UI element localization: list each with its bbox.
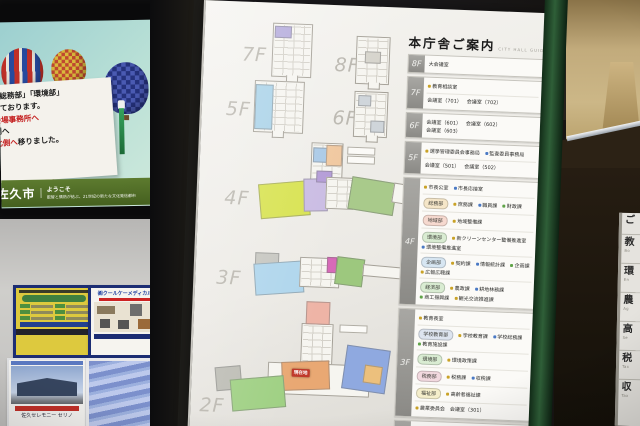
side-sign-kanji: 環 <box>624 266 640 277</box>
item-bullet <box>454 296 457 299</box>
banner-text: ようこそ 叡智と情熱が結ぶ、21世紀の新たな文化発信都市 <box>47 185 136 199</box>
item-bullet <box>447 375 450 378</box>
side-sign-kanji: 教 <box>624 237 640 248</box>
directory-item: 広報広聴課 <box>421 268 451 276</box>
directory-floor-5f: 5F選挙管理委員会事務局監査委員事務局会議室（501）会議室（502） <box>403 141 540 179</box>
side-sign-row: 収Tax <box>618 379 640 409</box>
plan-room <box>254 84 274 130</box>
directory-item-label: 会議室（702） <box>467 98 502 106</box>
department-pill: 税務部 <box>417 370 442 382</box>
notice-text: 北側へ <box>0 138 18 149</box>
directory-item: 会議室（602） <box>466 120 501 128</box>
plan-2f-left-wing <box>230 375 286 411</box>
decor <box>66 311 88 314</box>
directory-item-label: 農業委員会 <box>420 405 445 413</box>
plan-callout <box>347 147 375 156</box>
directory-item: 教育施設課 <box>418 340 448 348</box>
side-sign-rows: ご教Bo環En農Ag高Se税Tax収Tax <box>618 213 640 409</box>
balloon-basket <box>124 115 129 120</box>
ceremony-hall-poster: 佐久セレモニー セリノ <box>7 358 87 426</box>
directory-item-label: 会議室（501） <box>425 162 460 170</box>
directory-panel: 本庁舎ご案内CITY HALL GUIDE 8F大会議室7F教育相談室会議室（7… <box>391 32 545 426</box>
floor-content: 大会議室 <box>424 56 543 78</box>
floor-badge-5f: 5F <box>405 142 422 174</box>
decor <box>97 306 115 314</box>
directory-item-label: 商工振興課 <box>424 293 449 301</box>
directory-item-label: 収税課 <box>476 374 491 382</box>
decor <box>100 319 110 328</box>
floor-content: 市長公室市長応接室総務部庶務課職員課財政課地域部地域整備課環境部新クリーンセンタ… <box>415 178 538 308</box>
item-bullet <box>428 85 431 88</box>
decor <box>130 304 142 316</box>
plan-3f-right-wing <box>334 256 365 287</box>
department-pill: 経済部 <box>420 281 445 293</box>
directory-item: 契約課 <box>451 259 471 267</box>
side-sign-english: Ag <box>623 306 640 311</box>
directory-item-label: 会議室（502） <box>464 163 499 171</box>
directory-item-label: 職員課 <box>482 201 497 209</box>
side-sign-row: 高Se <box>619 321 640 351</box>
item-bullet <box>452 236 455 239</box>
decor <box>20 316 30 320</box>
directory-floor-3f: 3F教育長室学校教育部学校教育課学校総務課教育施設課環境部環境政策課税務部税務課… <box>394 308 534 422</box>
directory-item: 会議室（701） <box>427 97 462 105</box>
medical-equipment-photo <box>94 302 156 332</box>
directory-item-label: 選挙管理委員会事務局 <box>430 148 480 157</box>
directory-item-label: 教育相談室 <box>432 83 457 91</box>
directory-item: 選挙管理委員会事務局 <box>425 148 480 157</box>
decor <box>20 304 30 308</box>
building <box>17 378 77 396</box>
side-sign-kanji: 農 <box>623 295 640 306</box>
decor <box>118 320 129 329</box>
department-pill: 環境部 <box>417 353 442 365</box>
directory-item: 地域整備課 <box>453 217 483 225</box>
directory-item-label: 新クリーンセンター整備推進室 <box>456 234 526 244</box>
side-sign-english: Tax <box>621 393 640 398</box>
guide-board: 7F 8F 5F 6F 4F 3F 2F <box>188 0 550 426</box>
directory-item-label: 税務課 <box>451 373 466 381</box>
department-pill: 学校教育部 <box>418 328 453 340</box>
directory-item-label: 観光交流推進課 <box>459 295 494 303</box>
side-sign-english: Tax <box>622 364 640 369</box>
directory-item: 大会議室 <box>429 61 449 69</box>
directory-item: 市長応接室 <box>453 185 483 193</box>
directory-item-label: 大会議室 <box>429 61 449 69</box>
directory-floor-6f: 6F会議室（601）会議室（602）会議室（603） <box>405 112 542 143</box>
directory-item-label: 農政課 <box>455 284 470 292</box>
plan-label-5f: 5F <box>225 98 251 121</box>
plan-label-7f: 7F <box>242 44 268 67</box>
floor-plan-6f <box>353 91 389 138</box>
ad-contact-bar <box>94 334 156 339</box>
floor-badge-6f: 6F <box>406 113 423 138</box>
directory-line: 農業委員会会議室（301） <box>414 400 526 418</box>
blue-water-poster <box>86 358 160 426</box>
decor <box>138 319 150 329</box>
timetable-ad-poster <box>13 285 95 358</box>
board-title: 本庁舎ご案内CITY HALL GUIDE <box>408 32 545 56</box>
item-bullet <box>419 316 422 319</box>
item-bullet <box>424 186 427 189</box>
directory-item: 高齢者福祉課 <box>446 390 481 398</box>
decor <box>20 316 53 320</box>
item-bullet <box>485 152 488 155</box>
tv-banner: 佐久市 | ようこそ 叡智と情熱が結ぶ、21世紀の新たな文化発信都市 <box>1 178 154 208</box>
decor <box>66 305 88 308</box>
side-sign-row: 教Bo <box>621 234 640 264</box>
ad-phone-bar <box>16 329 92 335</box>
item-bullet <box>475 287 478 290</box>
directory-item: 企画課 <box>510 261 530 269</box>
item-bullet <box>453 187 456 190</box>
directory-item: 新クリーンセンター整備推進室 <box>452 234 526 244</box>
side-sign-english: Se <box>623 335 640 340</box>
directory-item: 会議室（603） <box>426 126 461 134</box>
directory-item-label: 財政課 <box>507 202 522 210</box>
floor-plan-8f <box>355 36 391 85</box>
directory-item-label: 教育長室 <box>423 315 443 323</box>
department-pill: 環境部 <box>422 231 447 243</box>
directory-item: 耕地林務課 <box>475 285 505 293</box>
directory-item: 商工振興課 <box>420 293 450 301</box>
directory-item-label: 市長公室 <box>428 184 448 192</box>
item-bullet <box>425 150 428 153</box>
item-bullet <box>453 202 456 205</box>
ad-subtitle-bar <box>99 298 151 301</box>
floor-badge-2f: 2F <box>392 421 411 426</box>
directory-item: 会議室（301） <box>450 406 485 414</box>
plan-room <box>326 145 343 167</box>
directory-item: 会議室（702） <box>467 98 502 106</box>
plan-callout <box>347 156 375 165</box>
directory-item-label: 監査委員事務局 <box>489 150 524 158</box>
directory-floors: 8F大会議室7F教育相談室会議室（701）会議室（702）6F会議室（601）会… <box>391 54 544 426</box>
directory-item: 会議室（601） <box>426 118 461 126</box>
ceremony-hall-caption: 佐久セレモニー セリノ <box>9 412 85 419</box>
side-sign-kanji: 税 <box>622 353 640 364</box>
item-bullet <box>415 406 418 409</box>
plan-4f-right-wing <box>347 176 398 216</box>
directory-item-label: 環境整備推進室 <box>426 243 461 251</box>
decor <box>66 317 88 320</box>
plan-room <box>363 365 383 385</box>
city-name: 佐久市 <box>0 185 36 203</box>
decor <box>55 316 65 320</box>
directory-item: 教育相談室 <box>428 83 458 91</box>
directory-item: 庶務課 <box>453 200 473 208</box>
directory-item: 市長公室 <box>424 184 449 192</box>
floor-plan-5f <box>253 80 305 134</box>
directory-item-label: 学校教育課 <box>463 332 488 340</box>
directory-item: 学校教育課 <box>458 332 488 340</box>
directory-item-label: 企画課 <box>514 262 529 270</box>
directory-item: 学校総務課 <box>493 333 523 341</box>
item-bullet <box>447 358 450 361</box>
directory-line: 会議室（601）会議室（602）会議室（603） <box>425 116 538 140</box>
medical-ad-title: ㈱クールケーメディカル <box>91 290 159 297</box>
directory-floor-4f: 4F市長公室市長応接室総務部庶務課職員課財政課地域部地域整備課環境部新クリーンセ… <box>398 177 539 310</box>
directory-item: 監査委員事務局 <box>485 150 525 159</box>
ad-url-bar <box>20 322 88 327</box>
plan-3f-left-wing <box>253 260 304 295</box>
department-pill: 地域部 <box>423 214 448 226</box>
board-title-text: 本庁舎ご案内 <box>408 35 496 53</box>
ad-table <box>20 304 88 320</box>
plan-callout <box>339 324 367 333</box>
tv-screen: 「総務部」「環境部」しております。会場事務所へ側へ北側へ移りました。 佐久市 |… <box>0 20 155 209</box>
directory-item: 会議室（502） <box>464 163 499 171</box>
directory-item: 収税課 <box>471 374 491 382</box>
item-bullet <box>471 376 474 379</box>
floor-badge-8f: 8F <box>408 55 425 73</box>
decor <box>20 310 30 314</box>
directory-item: 財政課 <box>502 202 522 210</box>
side-sign-row: 税Tax <box>619 350 640 380</box>
side-sign-english: En <box>624 277 640 282</box>
building-photo <box>11 366 83 404</box>
department-pill: 福祉部 <box>416 387 441 399</box>
decor <box>55 304 88 308</box>
plan-label-3f: 3F <box>216 267 242 290</box>
department-pill: 総務部 <box>423 197 448 209</box>
tv-monitor: 「総務部」「環境部」しております。会場事務所へ側へ北側へ移りました。 佐久市 |… <box>0 0 174 219</box>
directory-item-label: 会議室（601） <box>426 118 461 126</box>
directory-item: 教育長室 <box>419 314 444 322</box>
decor <box>55 316 88 320</box>
floor-content: 選挙管理委員会事務局監査委員事務局会議室（501）会議室（502） <box>421 142 540 178</box>
directory-item: 税務課 <box>447 373 467 381</box>
directory-item-label: 庶務課 <box>458 200 473 208</box>
directory-item-label: 会議室（603） <box>426 126 461 134</box>
photo-scene: 「総務部」「環境部」しております。会場事務所へ側へ北側へ移りました。 佐久市 |… <box>0 0 640 426</box>
department-pill: 企画部 <box>421 256 446 268</box>
plan-room <box>370 120 384 133</box>
item-bullet <box>422 245 425 248</box>
directory-line: 会議室（701）会議室（702） <box>426 93 538 111</box>
side-sign-row: 環En <box>621 263 640 293</box>
item-bullet <box>421 270 424 273</box>
green-pole <box>119 108 125 154</box>
item-bullet <box>478 203 481 206</box>
plan-label-4f: 4F <box>224 187 250 210</box>
plan-room <box>358 95 371 106</box>
floor-content: 会議室（601）会議室（602）会議室（603） <box>422 113 541 142</box>
directory-item: 情報統計課 <box>475 260 505 268</box>
directory-item-label: 地域整備課 <box>457 217 482 225</box>
board-subtitle: CITY HALL GUIDE <box>498 46 548 53</box>
decor <box>368 82 380 89</box>
side-sign-kanji: ご <box>625 215 640 226</box>
directory-item: 職員課 <box>478 201 498 209</box>
item-bullet <box>420 295 423 298</box>
item-bullet <box>450 286 453 289</box>
notice-text: 移りました。 <box>17 135 63 147</box>
item-bullet <box>510 263 513 266</box>
decor <box>31 317 53 320</box>
directory-item-label: 契約課 <box>455 259 470 267</box>
decor <box>20 304 53 308</box>
item-bullet <box>446 392 449 395</box>
floor-plan-7f <box>271 23 313 78</box>
side-directory-sign: ご教Bo環En農Ag高Se税Tax収Tax <box>615 213 640 426</box>
decor <box>55 310 88 314</box>
floor-badge-7f: 7F <box>407 77 424 109</box>
directory-item: 農政課 <box>450 284 470 292</box>
directory-floor-8f: 8F大会議室 <box>407 54 544 78</box>
plan-room <box>275 26 292 39</box>
item-bullet <box>502 204 505 207</box>
directory-item-label: 環境政策課 <box>452 356 477 364</box>
side-sign-kanji: 高 <box>623 324 640 335</box>
decor <box>31 305 53 308</box>
item-bullet <box>458 334 461 337</box>
ad-green-banner <box>22 295 86 302</box>
notice-text: 会場事務所へ <box>0 113 39 125</box>
plan-room <box>306 301 331 325</box>
side-sign-english: Bo <box>624 248 640 253</box>
notice-text: 側へ <box>0 127 10 137</box>
decor <box>55 310 65 314</box>
you-are-here-badge: 現在地 <box>292 369 310 378</box>
side-sign-row: 農Ag <box>620 292 640 322</box>
poster-header-bar <box>11 361 83 365</box>
floor-content: 教育相談室会議室（701）会議室（702） <box>423 78 542 114</box>
banner-divider: | <box>39 188 43 199</box>
poster-red-banner <box>15 406 79 411</box>
directory-item-label: 会議室（602） <box>466 120 501 128</box>
decor <box>55 304 65 308</box>
directory-item: 観光交流推進課 <box>454 294 494 303</box>
tv-notice-panel: 「総務部」「環境部」しております。会場事務所へ側へ北側へ移りました。 <box>0 77 118 184</box>
directory-item-label: 会議室（301） <box>450 406 485 414</box>
directory-line: 経済部農政課耕地林務課商工振興課観光交流推進課 <box>419 277 532 306</box>
item-bullet <box>453 219 456 222</box>
city-slogan: 叡智と情熱が結ぶ、21世紀の新たな文化発信都市 <box>47 193 136 200</box>
item-bullet <box>451 261 454 264</box>
ad-headline-bar <box>19 290 89 293</box>
side-sign-row: ご <box>622 213 640 235</box>
side-sign-kanji: 収 <box>621 382 640 393</box>
directory-item-label: 情報統計課 <box>480 260 505 268</box>
decor <box>31 311 53 314</box>
directory-item: 会議室（501） <box>425 162 460 170</box>
directory-floor-7f: 7F教育相談室会議室（701）会議室（702） <box>406 76 543 114</box>
floor-plans: 7F 8F 5F 6F 4F 3F 2F <box>190 0 411 426</box>
item-bullet <box>476 262 479 265</box>
directory-item: 農業委員会 <box>415 404 445 412</box>
item-bullet <box>418 342 421 345</box>
decor <box>20 310 53 314</box>
directory-item-label: 高齢者福祉課 <box>450 390 480 398</box>
directory-item-label: 耕地林務課 <box>479 285 504 293</box>
directory-line: 会議室（501）会議室（502） <box>424 158 536 176</box>
directory-item: 環境整備推進室 <box>422 243 462 252</box>
directory-item-label: 学校総務課 <box>497 333 522 341</box>
directory-line: 大会議室 <box>427 58 539 75</box>
directory-item: 環境政策課 <box>447 356 477 364</box>
directory-item-label: 教育施設課 <box>422 340 447 348</box>
directory-item-label: 広報広聴課 <box>425 268 450 276</box>
item-bullet <box>493 335 496 338</box>
floor-content: 会計課会計課検査課福祉部福祉課子育て支援課市民健康部市民課人権同和課健康づくり推… <box>408 421 529 426</box>
floor-content: 教育長室学校教育部学校教育課学校総務課教育施設課環境部環境政策課税務部税務課収税… <box>411 309 533 420</box>
directory-item-label: 市長応接室 <box>458 185 483 193</box>
plan-room <box>365 51 381 64</box>
directory-item-label: 会議室（701） <box>427 97 462 105</box>
